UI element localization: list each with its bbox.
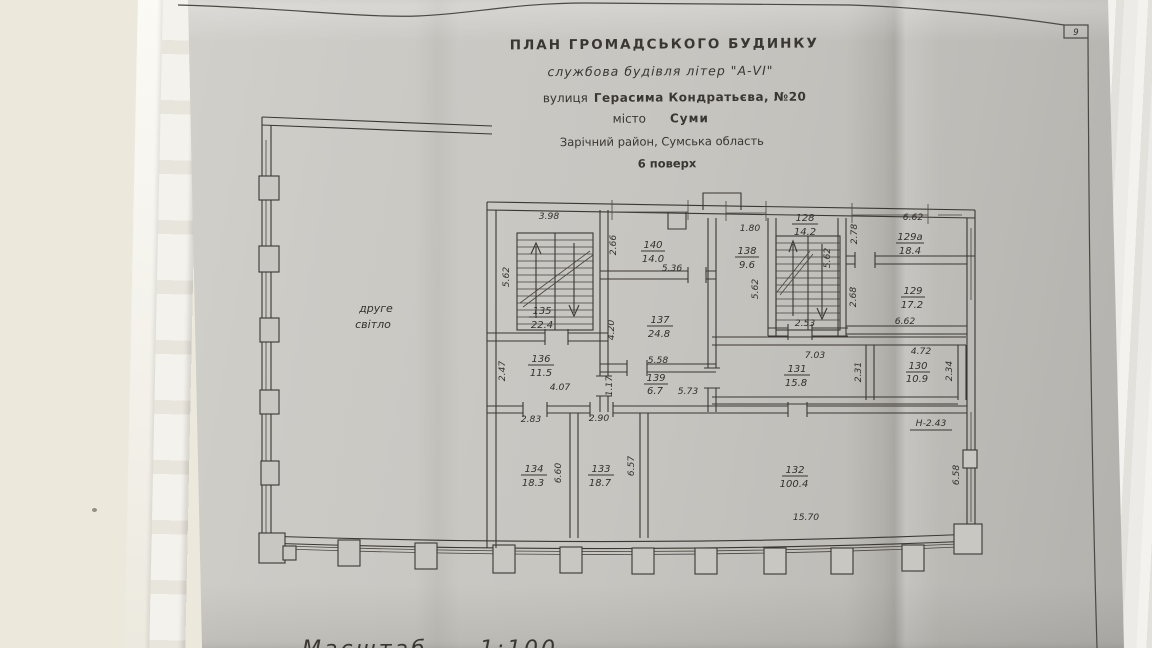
district-line: Зарічний район, Сумська область: [560, 134, 764, 149]
street-line: вулицяГерасима Кондратьєва, №20: [543, 90, 807, 106]
plan-title: ПЛАН ГРОМАДСЬКОГО БУДИНКУ: [510, 36, 819, 54]
street-value: Герасима Кондратьєва, №20: [594, 90, 807, 105]
building-subtitle: службова будівля літер "А-VI": [547, 63, 773, 79]
city-value: Суми: [670, 111, 709, 125]
scale-note: Масштаб 1:100: [302, 637, 558, 648]
photographed-floor-plan-document: 9: [0, 0, 1152, 648]
street-label: вулиця: [543, 91, 588, 105]
city-label: місто: [613, 112, 646, 126]
city-line: містоСуми: [613, 111, 709, 126]
title-block: ПЛАН ГРОМАДСЬКОГО БУДИНКУ службова будів…: [0, 0, 1152, 648]
floor-line: 6 поверх: [638, 156, 697, 170]
